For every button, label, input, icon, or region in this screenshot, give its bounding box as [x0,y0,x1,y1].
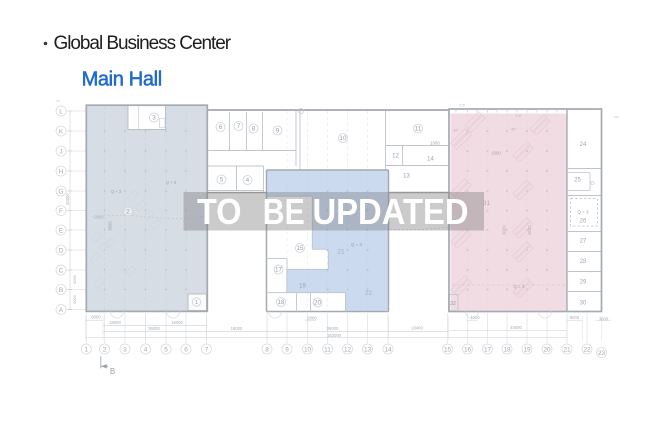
svg-text:21: 21 [563,346,571,353]
svg-text:32: 32 [450,301,456,307]
svg-text:7: 7 [237,123,241,130]
svg-text:K: K [59,128,64,135]
svg-text:13: 13 [403,174,410,180]
svg-text:5: 5 [164,346,168,353]
svg-text:17: 17 [484,346,492,353]
svg-text:19: 19 [523,346,531,353]
svg-text:6000: 6000 [73,295,77,303]
svg-text:153000: 153000 [327,333,342,338]
svg-text:16: 16 [464,346,472,353]
svg-text:6: 6 [184,346,188,353]
svg-text:8: 8 [265,346,269,353]
svg-text:22: 22 [365,290,373,297]
svg-text:21: 21 [337,249,345,256]
svg-text:2000: 2000 [307,315,317,320]
svg-text:2693: 2693 [94,215,104,220]
svg-text:3: 3 [123,346,127,353]
svg-text:30: 30 [580,301,587,307]
svg-text:31: 31 [483,200,491,207]
svg-text:Q = 3: Q = 3 [351,242,363,247]
svg-text:18000: 18000 [231,326,243,331]
svg-text:1: 1 [195,300,198,306]
svg-text:11: 11 [415,126,422,133]
svg-text:2.5: 2.5 [459,103,465,108]
svg-text:45000: 45000 [510,325,522,330]
svg-text:8: 8 [252,126,256,133]
svg-text:13: 13 [364,346,372,353]
svg-text:5: 5 [220,177,224,184]
svg-text:Main Hall: Main Hall [82,69,162,91]
svg-text:1000: 1000 [430,141,440,146]
svg-text:Q + 3: Q + 3 [111,189,122,194]
svg-text:28: 28 [580,259,587,265]
svg-text:18000: 18000 [171,320,183,325]
svg-text:7: 7 [205,346,209,353]
svg-text:Q + 3: Q + 3 [166,180,177,185]
svg-text:B: B [110,367,115,376]
svg-text:3000: 3000 [599,316,609,321]
svg-text:10: 10 [304,346,312,353]
svg-text:2: 2 [103,346,107,353]
svg-text:45°: 45° [453,129,459,133]
svg-text:29: 29 [580,280,587,286]
svg-text:18400: 18400 [411,325,423,330]
svg-text:Q = 3: Q = 3 [513,284,525,289]
svg-text:1: 1 [85,346,89,353]
svg-text:10: 10 [340,135,347,142]
svg-text:B: B [59,287,63,294]
svg-text:4: 4 [246,177,250,184]
svg-text:24: 24 [580,142,587,148]
svg-text:23: 23 [598,350,606,357]
svg-text:BE: BE [263,191,305,232]
svg-text:20: 20 [543,346,551,353]
svg-text:A: A [59,307,64,314]
svg-text:6000: 6000 [502,225,507,235]
svg-text:12: 12 [392,154,399,160]
svg-text:26: 26 [580,219,587,225]
svg-text:F: F [59,208,63,215]
svg-text:TO: TO [197,191,242,232]
svg-text:2: 2 [126,209,130,216]
svg-text:14: 14 [384,346,392,353]
svg-text:Q = 3: Q = 3 [577,210,589,215]
svg-text:36000: 36000 [148,326,160,331]
svg-text:27: 27 [580,239,587,245]
svg-text:3600: 3600 [108,221,113,231]
svg-text:12: 12 [344,346,352,353]
svg-text:1000: 1000 [491,151,501,156]
svg-text:36000: 36000 [327,326,339,331]
svg-text:G: G [59,188,64,195]
svg-text:9: 9 [276,128,280,135]
svg-text:UPDATED: UPDATED [313,191,469,232]
svg-text:4: 4 [144,346,148,353]
svg-text:H: H [59,168,64,175]
svg-text:25: 25 [574,178,581,184]
svg-text:60000: 60000 [65,193,70,205]
svg-text:6000: 6000 [73,275,77,283]
svg-text:2.3: 2.3 [515,113,521,118]
svg-text:E: E [59,227,63,234]
svg-text:17: 17 [275,267,282,274]
svg-text:11: 11 [324,346,331,353]
svg-text:18: 18 [503,346,511,353]
svg-text:20: 20 [314,300,321,307]
svg-text:Global Business Center: Global Business Center [54,33,232,54]
svg-text:6000: 6000 [91,314,101,319]
svg-text:6: 6 [219,124,223,131]
svg-text:3: 3 [152,115,156,122]
svg-text:J: J [59,148,62,155]
svg-text:18000: 18000 [109,320,121,325]
svg-text:6000: 6000 [570,315,580,320]
svg-text:6000: 6000 [527,225,532,235]
svg-text:14: 14 [427,157,434,163]
svg-text:C: C [59,267,64,274]
svg-text:19: 19 [299,284,306,290]
svg-text:22: 22 [583,346,591,353]
svg-text:45°: 45° [511,128,517,132]
svg-text:D: D [59,247,64,254]
svg-text:L: L [59,108,63,115]
svg-text:18: 18 [278,299,285,306]
svg-text:9: 9 [285,346,289,353]
svg-text:15: 15 [297,245,304,252]
svg-text:15: 15 [444,346,452,353]
